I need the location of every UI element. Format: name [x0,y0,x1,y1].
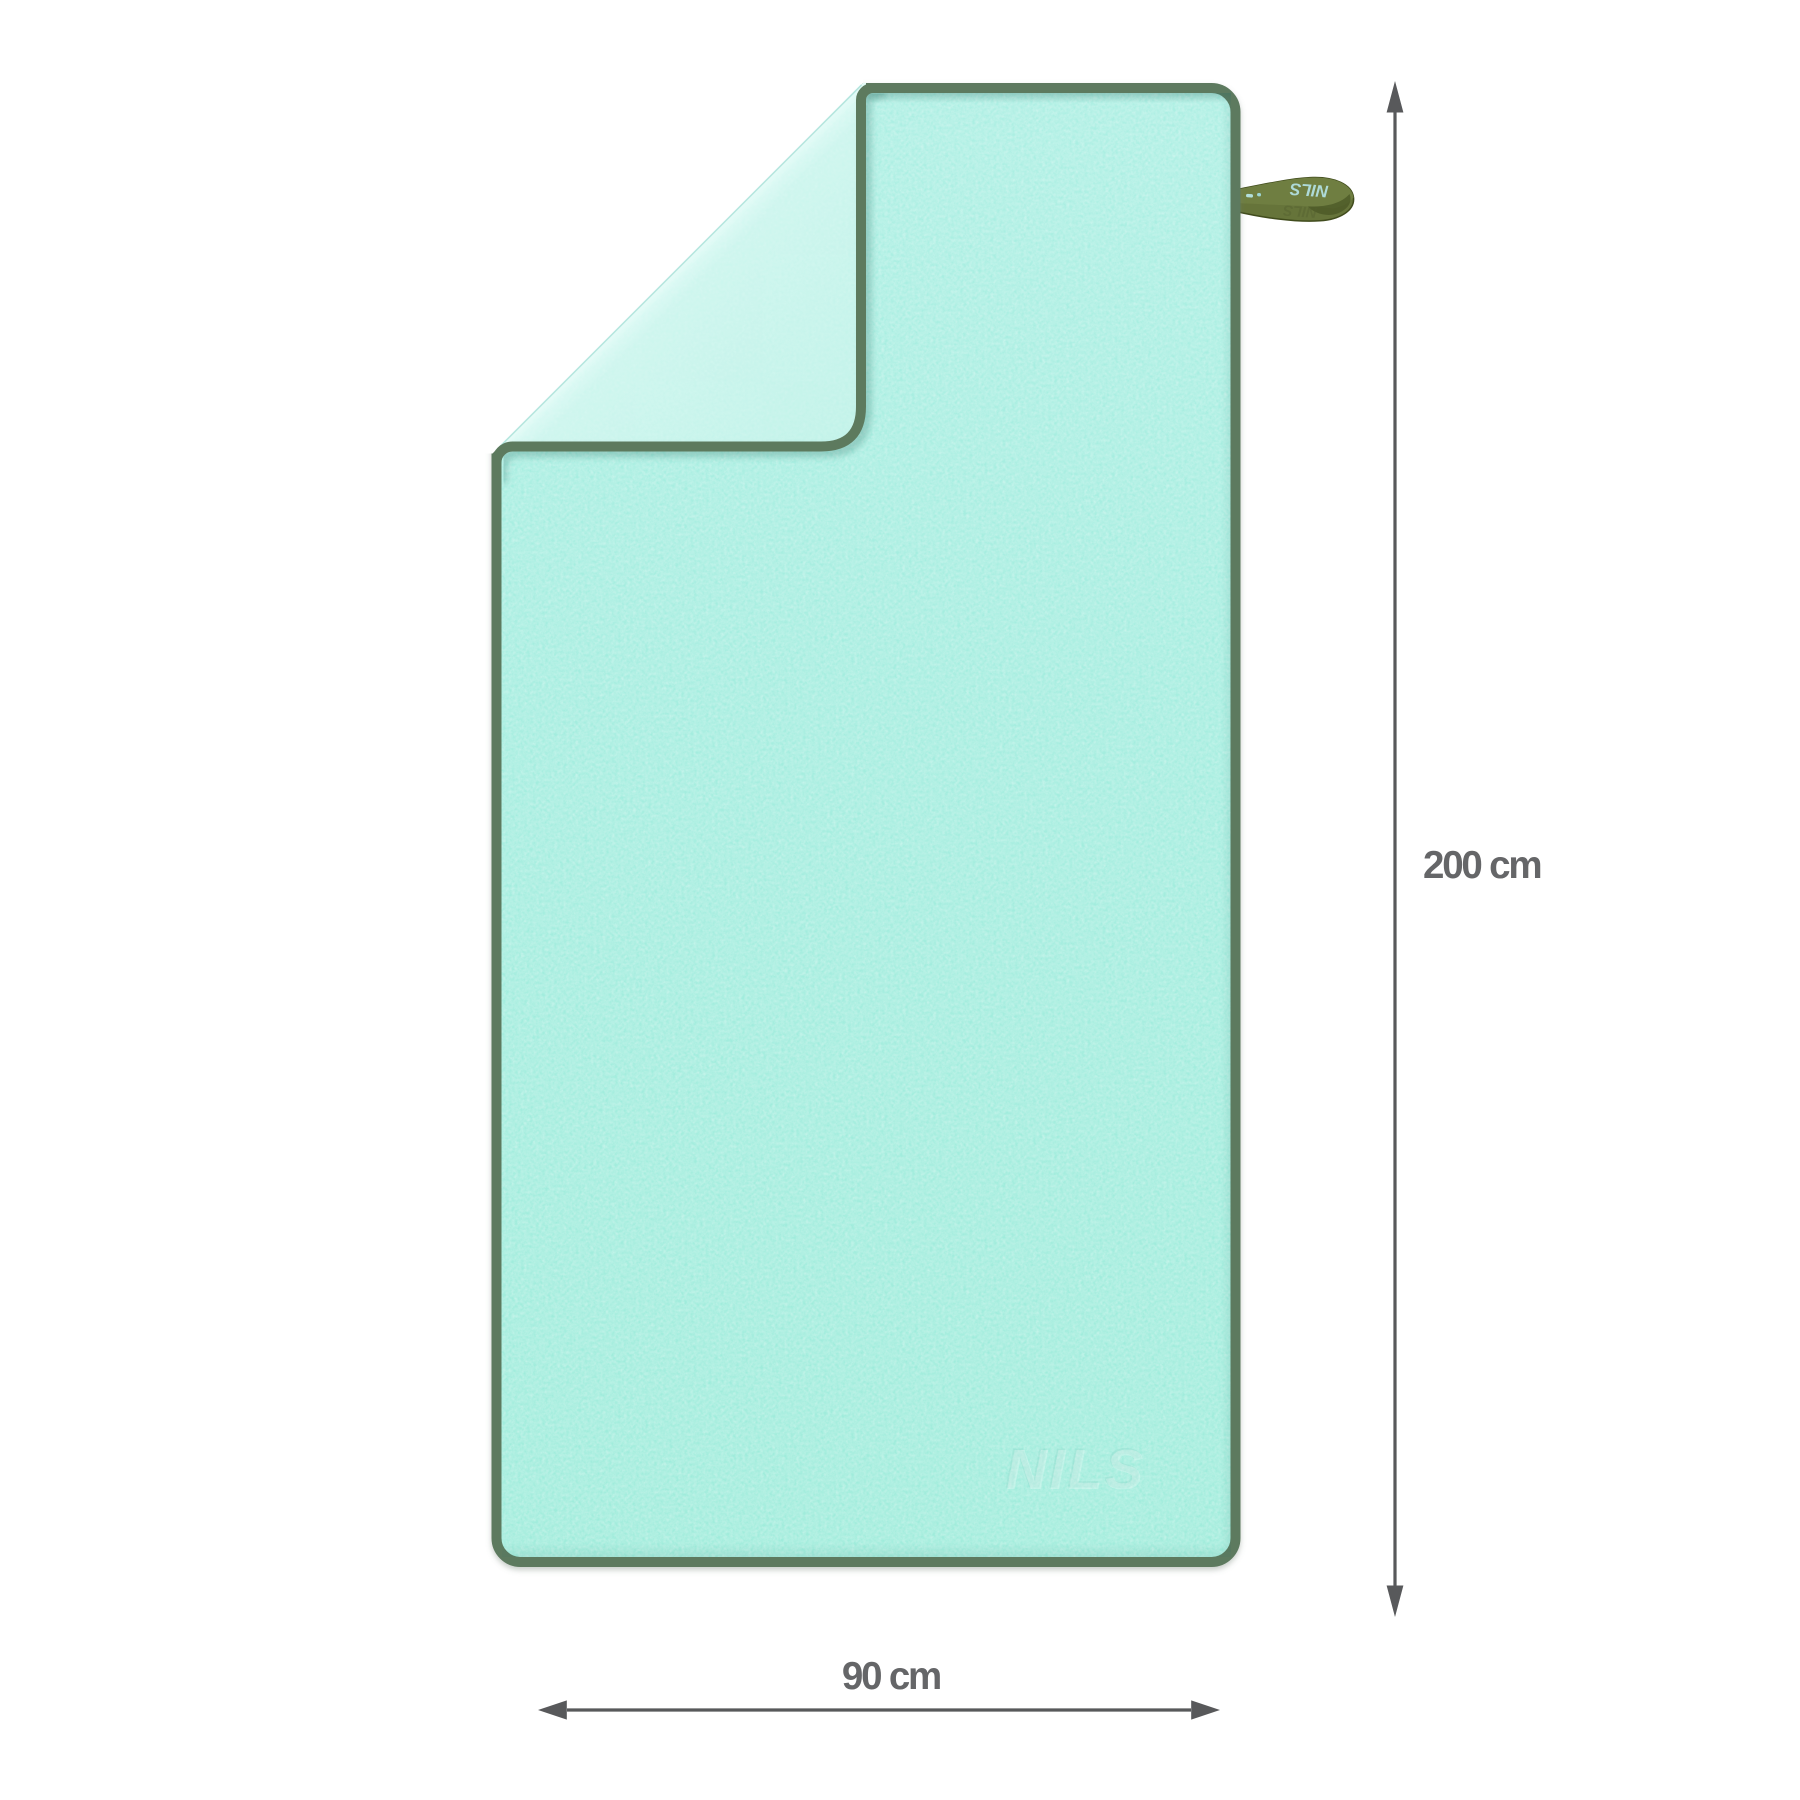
svg-text:NILS: NILS [1282,201,1317,220]
svg-text:90 cm: 90 cm [842,1655,940,1698]
svg-text:200 cm: 200 cm [1423,844,1540,887]
svg-text:NILS: NILS [1288,179,1329,201]
svg-text:NILS: NILS [1006,1438,1146,1502]
